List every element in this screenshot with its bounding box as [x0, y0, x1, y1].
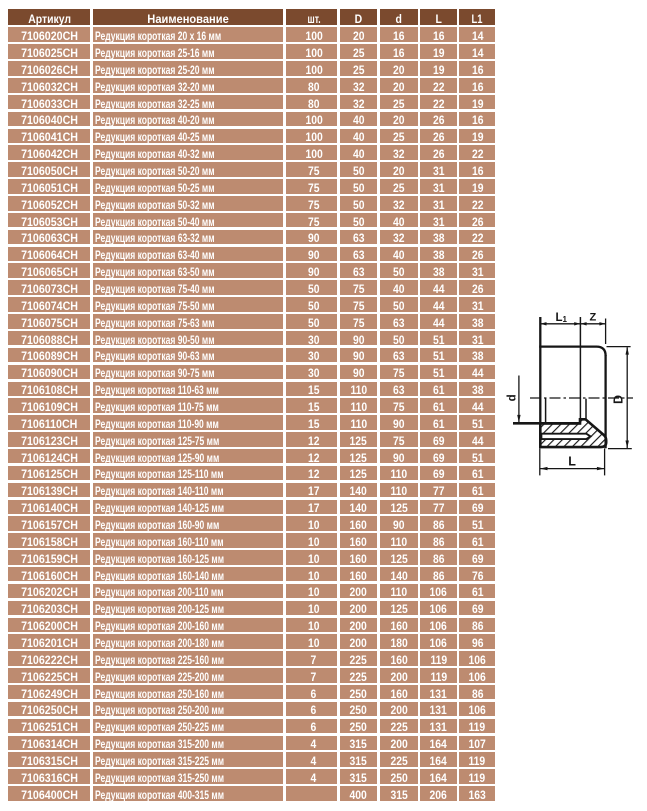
svg-text:L1: L1	[556, 312, 568, 324]
svg-text:L: L	[568, 455, 576, 469]
svg-text:d: d	[506, 394, 518, 401]
svg-text:Z: Z	[590, 311, 597, 323]
svg-text:D: D	[612, 395, 626, 404]
